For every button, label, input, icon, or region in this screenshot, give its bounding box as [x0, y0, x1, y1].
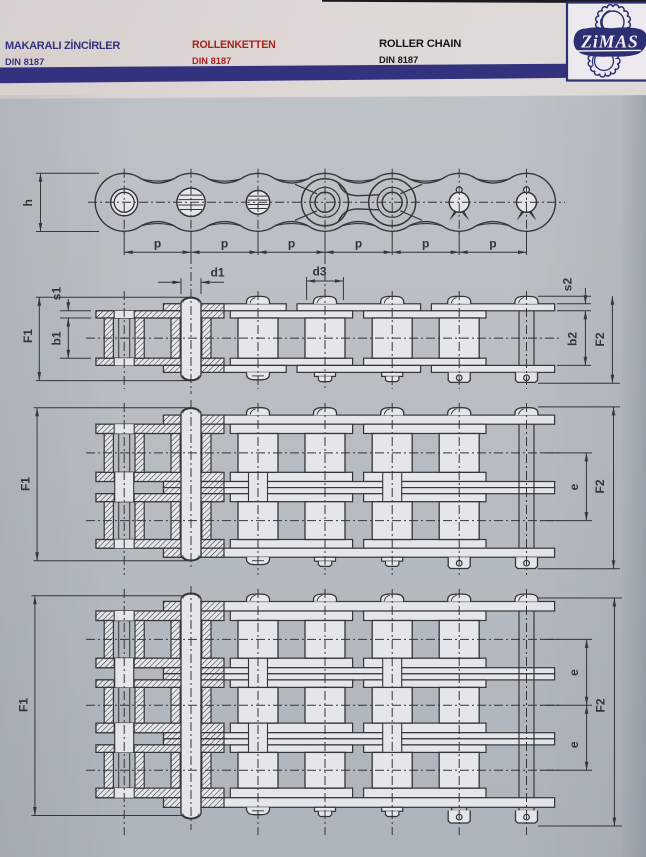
- svg-text:ZiMAS: ZiMAS: [580, 32, 639, 52]
